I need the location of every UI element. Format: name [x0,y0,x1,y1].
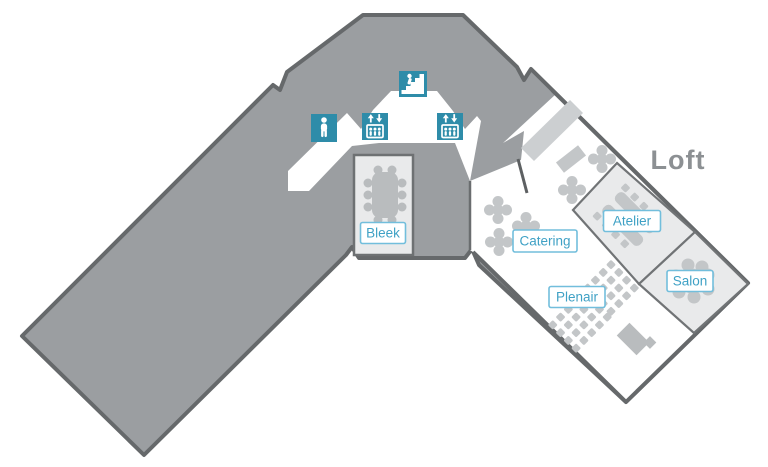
room-label-salon[interactable]: Salon [667,271,713,292]
elevator-icon [362,113,388,140]
room-label-atelier[interactable]: Atelier [604,211,661,232]
svg-text:Salon: Salon [673,274,708,289]
svg-text:Plenair: Plenair [556,290,599,305]
svg-text:Atelier: Atelier [613,214,652,229]
toilet-icon [311,114,337,142]
elevator-icon [437,113,463,140]
stairs-icon [399,71,427,97]
floor-plan-stage: Bleek Catering Plenair Atelier Salon Lof… [0,0,768,467]
floor-map[interactable]: Bleek Catering Plenair Atelier Salon Lof… [0,0,768,467]
room-label-bleek[interactable]: Bleek [361,223,406,244]
room-label-plenair[interactable]: Plenair [549,287,605,308]
svg-text:Catering: Catering [519,234,570,249]
room-label-catering[interactable]: Catering [513,230,577,252]
svg-text:Bleek: Bleek [366,226,400,241]
floor-name-label: Loft [651,145,706,175]
